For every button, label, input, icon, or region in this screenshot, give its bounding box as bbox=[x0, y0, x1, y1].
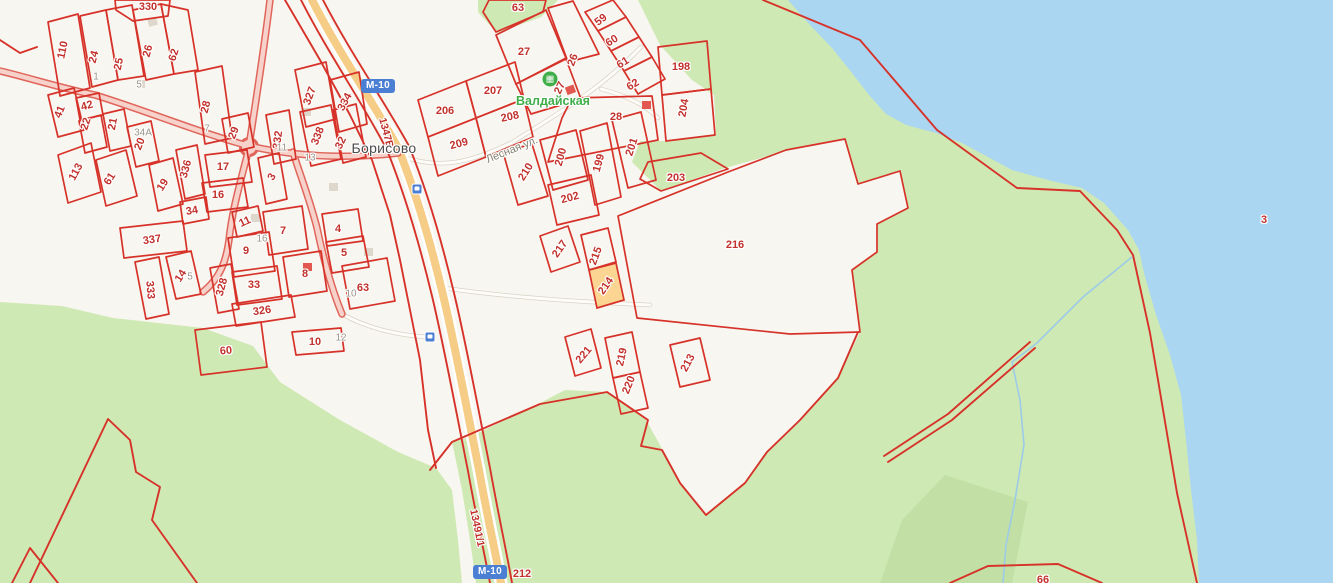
parcel-label-10: 10 bbox=[309, 336, 321, 348]
parcel-label-207: 207 bbox=[484, 85, 502, 97]
house-number-1: 1 bbox=[93, 72, 99, 83]
parcel-label-27: 27 bbox=[518, 46, 530, 58]
parcel-label-9: 9 bbox=[243, 245, 249, 257]
parcel-label-63: 63 bbox=[512, 2, 524, 14]
parcel-label-333: 333 bbox=[143, 280, 157, 299]
parcel-label-25: 25 bbox=[112, 57, 126, 71]
house-number-13: 13 bbox=[304, 153, 315, 164]
parcel-label-198: 198 bbox=[672, 61, 690, 73]
poi-label-valdayskaya[interactable]: Валдайская bbox=[516, 94, 590, 108]
parcel-label-17: 17 bbox=[217, 161, 229, 173]
parcel-label-7: 7 bbox=[280, 225, 286, 237]
parcel-label-4: 4 bbox=[335, 223, 341, 235]
parcel-label-212: 212 bbox=[513, 568, 531, 580]
parcel-label-34: 34 bbox=[185, 204, 199, 218]
house-number-11: 11 bbox=[277, 143, 287, 154]
house-number-5: 5 bbox=[187, 272, 193, 283]
map-canvas[interactable] bbox=[0, 0, 1333, 583]
parcel-label-60: 60 bbox=[219, 344, 232, 357]
highway-shield-m10-top: М-10 bbox=[361, 79, 395, 93]
house-number-34а: 34А bbox=[134, 128, 152, 139]
parcel-label-28: 28 bbox=[610, 111, 622, 123]
parcel-label-326: 326 bbox=[252, 304, 272, 318]
parcel-label-16: 16 bbox=[212, 189, 224, 201]
place-label-borisovo: Борисово bbox=[352, 140, 417, 156]
highway-shield-m10-bottom: М-10 bbox=[473, 565, 507, 579]
bus-stop-icon[interactable] bbox=[425, 332, 436, 343]
parcel-label-5: 5 bbox=[341, 247, 347, 259]
parcel-label-203: 203 bbox=[667, 172, 685, 184]
parcel-label-8: 8 bbox=[302, 268, 308, 280]
house-number-12: 12 bbox=[335, 333, 346, 344]
parcel-label-337: 337 bbox=[142, 233, 162, 247]
house-number-10: 10 bbox=[345, 289, 356, 300]
house-number-7: 7 bbox=[204, 124, 210, 135]
parcel-label-3: 3 bbox=[1261, 214, 1267, 226]
parcel-label-330: 330 bbox=[139, 1, 157, 13]
bus-stop-icon[interactable] bbox=[412, 184, 423, 195]
house-number-5: 5 bbox=[136, 80, 142, 91]
parcel-label-21: 21 bbox=[106, 117, 120, 131]
parcel-label-66: 66 bbox=[1037, 574, 1049, 583]
parcel-label-33: 33 bbox=[248, 279, 260, 291]
parcel-label-206: 206 bbox=[436, 105, 454, 117]
house-number-16: 16 bbox=[256, 234, 267, 245]
parcel-label-216: 216 bbox=[726, 239, 744, 251]
recreation-base-icon[interactable]: ▦ bbox=[543, 72, 558, 87]
map-viewport[interactable]: 3301102425266241422221202829327334332338… bbox=[0, 0, 1333, 583]
parcel-label-63: 63 bbox=[357, 282, 369, 294]
